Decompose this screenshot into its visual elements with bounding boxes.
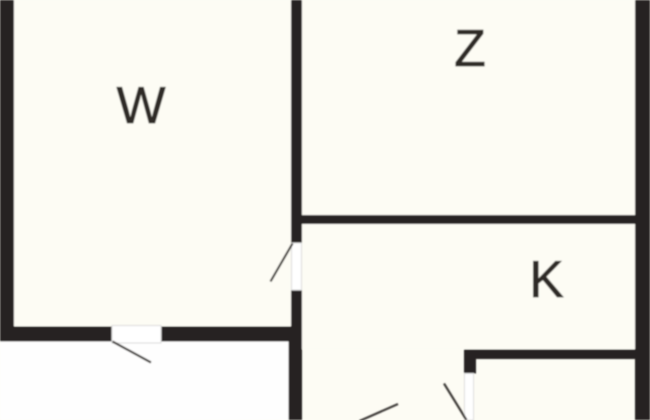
svg-text:W: W — [116, 77, 165, 135]
svg-text:K: K — [529, 251, 564, 309]
svg-text:Z: Z — [454, 20, 486, 78]
